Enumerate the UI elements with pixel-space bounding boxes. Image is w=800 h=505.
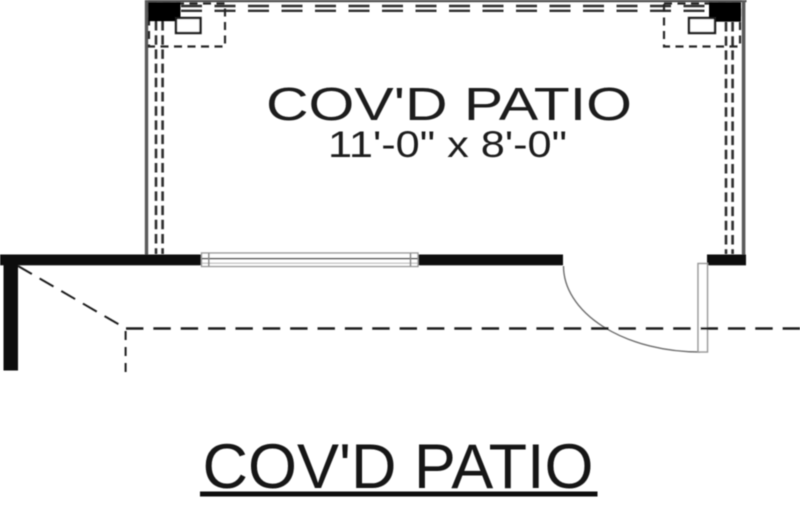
svg-text:COV'D PATIO: COV'D PATIO xyxy=(203,432,594,500)
svg-text:COV'D PATIO: COV'D PATIO xyxy=(266,78,632,130)
svg-text:11'-0" x 8'-0": 11'-0" x 8'-0" xyxy=(328,124,567,165)
